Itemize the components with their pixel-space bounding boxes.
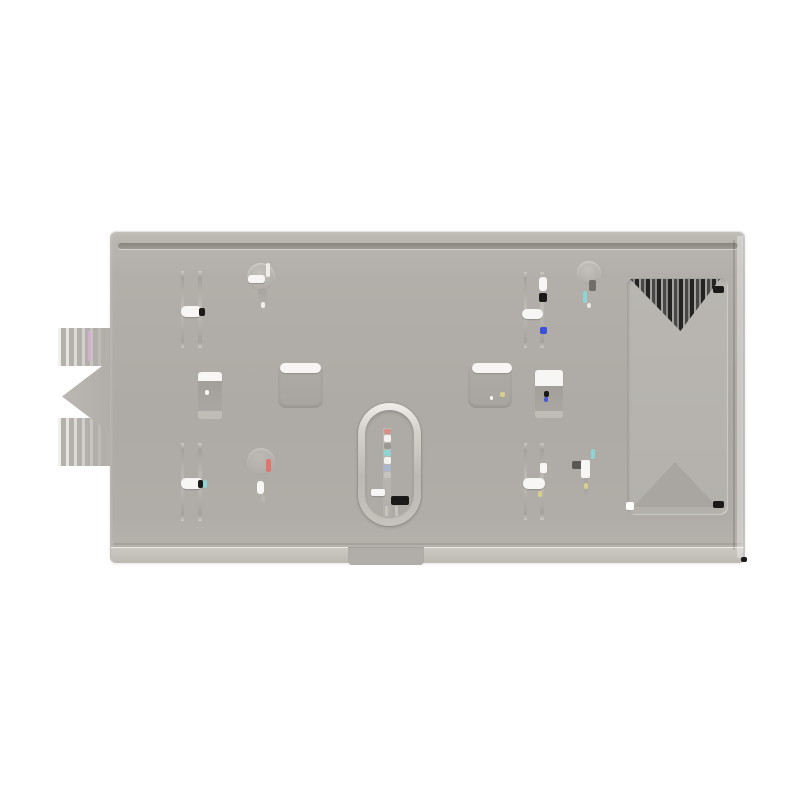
bottom-lip-right: [424, 547, 744, 563]
stadium-slot-tail: [395, 506, 398, 516]
plate-corner-mark: [741, 557, 747, 562]
top-edge-groove: [118, 243, 738, 249]
stadium-slot-mark: [384, 457, 391, 464]
recess-rect-right-highlight: [472, 363, 512, 373]
stadium-slot-mark: [384, 429, 391, 434]
bottom-lip-left: [111, 547, 348, 563]
keyhole-tick-top-left: [266, 263, 270, 277]
slot-opening-top-right: [522, 309, 543, 319]
keyhole-dot-top-right: [587, 303, 591, 308]
keyhole-dot-top-left: [261, 302, 265, 308]
slot-opening-bottom-right: [523, 478, 545, 489]
stadium-slot-tail: [385, 506, 388, 516]
left-wing-teeth-upper: [58, 328, 110, 366]
right-edge-groove: [733, 240, 735, 550]
stadium-slot-mark: [384, 450, 391, 456]
keyhole-mark-top-right: [589, 280, 596, 291]
left-wing-tooth-accent: [88, 331, 91, 361]
square-hole-right: [535, 386, 563, 412]
keyhole-slot-top-left: [248, 275, 265, 283]
keyhole-dot-bottom-right: [584, 483, 588, 489]
square-hole-left-dot: [205, 390, 209, 395]
right-edge-highlight: [737, 236, 743, 558]
square-hole-left: [198, 381, 222, 412]
recess-right-dot-yellow: [500, 392, 505, 397]
slot-mark-bottom-right-yellow: [538, 491, 542, 497]
keyhole-slot-bottom-right: [581, 460, 590, 478]
square-hole-left: [198, 411, 222, 419]
keyhole-slot-bottom-left: [257, 481, 264, 494]
keyhole-cyan-bottom-right: [591, 449, 595, 459]
cutout-corner-mark-white: [626, 502, 634, 510]
recess-rect-left-highlight: [280, 363, 321, 373]
slot-mark-top-left: [199, 308, 205, 316]
square-hole-right-dot-blue: [544, 397, 548, 402]
bottom-edge-groove: [114, 543, 742, 545]
bottom-center-tab: [348, 547, 424, 565]
slot-mark-bottom-left-cyan: [203, 480, 207, 488]
stadium-slot-mark: [384, 435, 391, 442]
square-hole-right: [535, 370, 563, 386]
keyhole-cyan-top-right: [583, 291, 587, 303]
stadium-black-tab: [391, 496, 409, 505]
stadium-white-dash: [371, 489, 385, 496]
stadium-slot-mark: [384, 443, 391, 449]
stadium-slot-mark: [384, 472, 391, 478]
slot-mark-top-right-blue: [540, 327, 547, 334]
cutout-corner-mark-top: [713, 286, 724, 293]
slot-mark-bottom-right-white: [540, 463, 547, 473]
stadium-slot-mark: [384, 465, 391, 471]
keyhole-mark-red: [266, 459, 271, 472]
slot-mark-top-right-black: [539, 293, 547, 302]
recess-right-dot-white: [490, 396, 493, 400]
cutout-corner-mark-bottom: [713, 501, 724, 508]
product-photo: [0, 0, 800, 800]
keyhole-stem-bottom-left: [261, 494, 265, 502]
square-hole-right: [535, 411, 563, 418]
slot-mark-top-right-white: [539, 277, 547, 291]
